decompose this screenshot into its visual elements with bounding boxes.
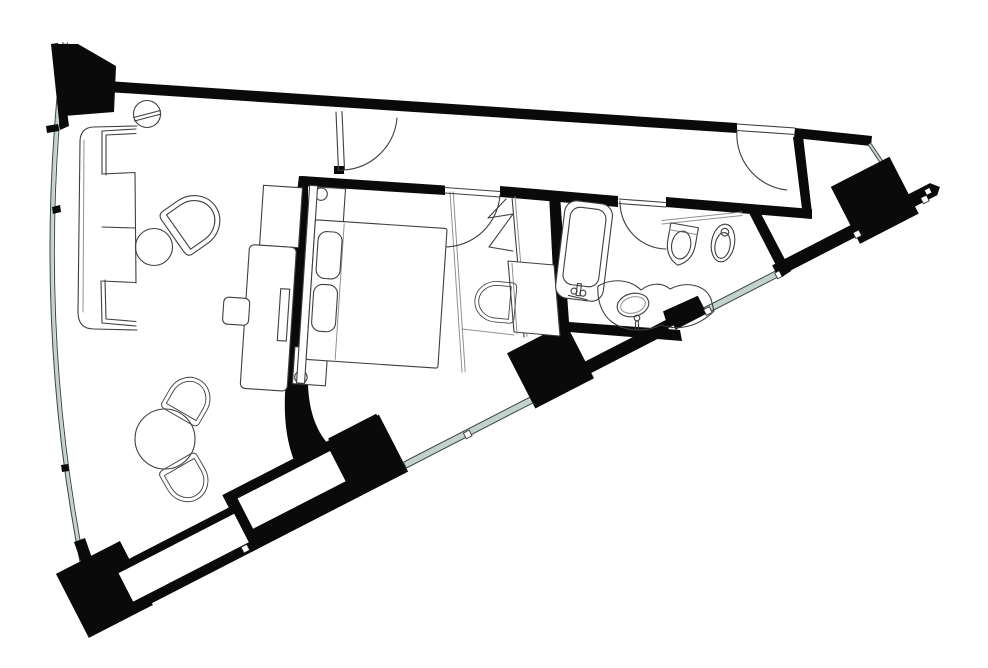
floor-plan-page [0, 0, 988, 668]
side-table [136, 229, 173, 266]
dining-chair-south [158, 451, 216, 509]
floor-lamp [134, 101, 162, 128]
entry-door-swing-arc [737, 130, 787, 190]
wall-north [107, 81, 737, 133]
armchair [158, 185, 230, 257]
facade-glass-b [704, 270, 780, 313]
bidet [708, 222, 737, 263]
living-room-door [336, 112, 397, 171]
bedroom-furniture [218, 180, 449, 401]
entry-door [737, 124, 795, 190]
entry-door-threshold [737, 124, 795, 135]
corner-sofa [78, 126, 137, 330]
curved-west-facade [46, 42, 98, 627]
toilet [664, 223, 699, 268]
desk-chair [473, 280, 517, 324]
dining-table [135, 409, 195, 469]
bathroom-door [619, 199, 666, 249]
pillow-left [316, 231, 343, 279]
bathroom-door-leaf [619, 199, 666, 207]
living-room-door-swing-arc [344, 118, 397, 170]
column-facade-mid [507, 323, 594, 408]
bathtub [554, 199, 614, 302]
double-bed [292, 185, 449, 393]
wall-north-east-segment [794, 128, 872, 146]
facade-wall-tip [903, 180, 942, 209]
pillow-right [311, 284, 338, 332]
bathroom-door-swing-arc [620, 201, 666, 249]
living-room-door-leaf [336, 112, 345, 171]
column-top-left [53, 44, 116, 116]
partition-bedroom-east [450, 192, 465, 372]
dining-chair-north [160, 369, 218, 427]
floor-plan-drawing [0, 0, 988, 668]
living-room-furniture [78, 101, 230, 510]
wardrobe-hanging-symbol [488, 199, 513, 251]
wc-shelf-ledge [662, 212, 742, 224]
washbasin [615, 290, 652, 320]
stool [222, 297, 250, 326]
south-east-facade-band [56, 134, 946, 640]
facade-mullion-tick-3 [61, 464, 69, 472]
wall-entry-hall-west [793, 136, 812, 217]
wall-wc-east [747, 208, 791, 277]
